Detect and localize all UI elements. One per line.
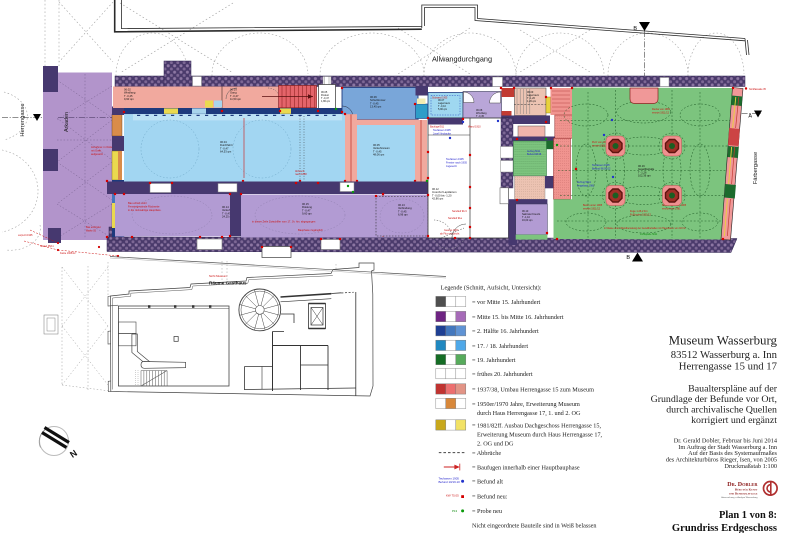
svg-text:6,96 qm: 6,96 qm xyxy=(398,213,408,217)
svg-text:83512 Wasserburg a. Inn: 83512 Wasserburg a. Inn xyxy=(671,349,778,361)
svg-text:42,86 qm: 42,86 qm xyxy=(432,197,444,201)
svg-text:Sandteil 91/4: Sandteil 91/4 xyxy=(452,210,467,213)
svg-text:Grundriss Erdgeschoss: Grundriss Erdgeschoss xyxy=(672,523,777,533)
svg-text:B: B xyxy=(626,255,630,261)
svg-text:Erweiterung Museum durch Haus: Erweiterung Museum durch Haus Herrengass… xyxy=(477,431,603,438)
svg-text:2. OG und DG: 2. OG und DG xyxy=(477,440,514,447)
svg-text:durch archivalische Quellen: durch archivalische Quellen xyxy=(666,404,777,415)
svg-text:= 19. Jahrhundert: = 19. Jahrhundert xyxy=(472,357,516,364)
svg-text:= Befund neu:: = Befund neu: xyxy=(472,493,508,500)
svg-text:48,06 qm: 48,06 qm xyxy=(373,153,385,157)
svg-text:Lichtquelle 5011: Lichtquelle 5011 xyxy=(640,233,658,236)
svg-text:Kante 1905/12: Kante 1905/12 xyxy=(60,252,76,255)
svg-text:Museum Wasserburg: Museum Wasserburg xyxy=(669,334,778,348)
svg-text:Druckmaßstab 1:100: Druckmaßstab 1:100 xyxy=(724,463,777,470)
svg-text:Sockel 05/11: Sockel 05/11 xyxy=(40,245,54,248)
svg-text:1,20 qm: 1,20 qm xyxy=(527,100,536,103)
svg-text:Allwangdurchgang: Allwangdurchgang xyxy=(432,55,492,64)
svg-text:Herrengasse 15 und 17: Herrengasse 15 und 17 xyxy=(679,360,778,372)
svg-text:ersetzt von 1981: ersetzt von 1981 xyxy=(662,207,681,210)
svg-text:Befund 98.09.02: Befund 98.09.02 xyxy=(592,167,611,170)
svg-text:Arkaden: Arkaden xyxy=(64,112,70,132)
svg-text:Befund 98.08: Befund 98.08 xyxy=(527,153,542,156)
svg-text:= 1981/82ff. Ausbau Dachgescho: = 1981/82ff. Ausbau Dachgeschoss Herreng… xyxy=(472,422,601,429)
svg-text:= Abbrüche: = Abbrüche xyxy=(472,450,501,457)
svg-text:Josef Neubauke: Josef Neubauke xyxy=(433,132,452,135)
svg-text:13,45 qm: 13,45 qm xyxy=(370,105,382,109)
svg-text:Befund 10/19.10: Befund 10/19.10 xyxy=(439,480,461,484)
svg-text:= vor Mitte 15. Jahrhundert: = vor Mitte 15. Jahrhundert xyxy=(472,299,541,306)
svg-text:= 1950er/1970 Jahre, Erweiteru: = 1950er/1970 Jahre, Erweiterung Museum xyxy=(472,401,580,408)
svg-text:Untersuchung u. Analyse Wasser: Untersuchung u. Analyse Wasserburg xyxy=(721,496,758,499)
svg-text:Räume Gasthaus: Räume Gasthaus xyxy=(209,281,247,286)
svg-text:= Baufugen innerhalb einer Hau: = Baufugen innerhalb einer Hauptbauphase xyxy=(472,465,580,472)
svg-text:5,90 qm: 5,90 qm xyxy=(438,108,447,111)
svg-text:Baualterspläne auf der: Baualterspläne auf der xyxy=(688,383,778,394)
svg-text:mit Gwlb.: mit Gwlb. xyxy=(91,148,102,152)
svg-text:ersetzt 1911/12: ersetzt 1911/12 xyxy=(583,207,601,210)
svg-text:16,00 qm: 16,00 qm xyxy=(522,219,532,222)
svg-text:in dieser Zeile Zwischllfer vo: in dieser Zeile Zwischllfer vom 17. Jh. … xyxy=(252,220,316,224)
svg-text:64,53 qm: 64,53 qm xyxy=(220,150,232,154)
svg-text:A: A xyxy=(748,114,752,120)
svg-text:102,36 qm: 102,36 qm xyxy=(638,174,651,178)
svg-text:1,86 qm: 1,86 qm xyxy=(321,100,330,103)
svg-text:Nordfassade 05: Nordfassade 05 xyxy=(749,88,767,91)
svg-text:Färbergasse: Färbergasse xyxy=(753,152,759,185)
svg-text:nach 1858: nach 1858 xyxy=(295,173,307,176)
svg-text:Südwand 1905: Südwand 1905 xyxy=(432,98,448,100)
svg-text:Bauphase zugänglich: Bauphase zugänglich xyxy=(298,228,323,232)
svg-text:Fußboden 1911/12: Fußboden 1911/12 xyxy=(630,213,652,216)
svg-text:11,50 qm: 11,50 qm xyxy=(230,97,242,101)
svg-text:Wand 1910: Wand 1910 xyxy=(468,126,481,129)
svg-text:Marke 05: Marke 05 xyxy=(86,229,97,232)
svg-text:Legende (Schnitt, Aufsicht, Un: Legende (Schnitt, Aufsicht, Untersicht): xyxy=(441,285,542,292)
svg-text:eingebaut 1981: eingebaut 1981 xyxy=(577,184,595,187)
svg-text:verputzt 1905: verputzt 1905 xyxy=(18,234,33,237)
svg-text:= frühes 20. Jahrhundert: = frühes 20. Jahrhundert xyxy=(472,371,533,378)
svg-text:in Masse unter Wandbemalung de: in Masse unter Wandbemalung der Gewölbeh… xyxy=(604,227,686,230)
svg-text:BÜRO FÜR KUNST: BÜRO FÜR KUNST xyxy=(735,487,758,491)
svg-text:Grundlage der Befunde vor Ort,: Grundlage der Befunde vor Ort, xyxy=(651,394,777,405)
svg-text:Sandteil 91a: Sandteil 91a xyxy=(448,217,463,220)
svg-text:= 2. Hälfte 16. Jahrhundert: = 2. Hälfte 16. Jahrhundert xyxy=(472,328,539,335)
svg-text:durch Haus Herrengasse 17, 1.: durch Haus Herrengasse 17, 1. und 2. OG xyxy=(477,410,581,417)
svg-text:= Befund alt: = Befund alt xyxy=(472,479,503,486)
svg-text:Annahme: in Ostteil: Annahme: in Ostteil xyxy=(91,145,114,149)
svg-text:Bau erhielt wohl: Bau erhielt wohl xyxy=(128,201,147,205)
svg-text:= Probe neu: = Probe neu xyxy=(472,508,502,515)
svg-text:Fenstergewände Rückseite: Fenstergewände Rückseite xyxy=(128,204,160,208)
svg-text:korrigiert und ergänzt: korrigiert und ergänzt xyxy=(691,415,777,426)
svg-text:aufgesetzt: aufgesetzt xyxy=(91,152,103,156)
svg-text:KW 75.05: KW 75.05 xyxy=(446,493,459,497)
svg-text:B: B xyxy=(633,26,637,32)
svg-text:zugesetzt: zugesetzt xyxy=(446,165,457,168)
svg-text:9,90 qm: 9,90 qm xyxy=(124,97,134,101)
svg-text:Herrengasse: Herrengasse xyxy=(20,103,26,136)
svg-text:Nicht Museum:: Nicht Museum: xyxy=(209,274,228,278)
svg-text:= Mitte 15. bis Mitte 16. Jahr: = Mitte 15. bis Mitte 16. Jahrhundert xyxy=(472,314,564,321)
svg-text:ersetzt 1911/12: ersetzt 1911/12 xyxy=(652,111,670,114)
svg-text:= 17. / 18. Jahrhundert: = 17. / 18. Jahrhundert xyxy=(472,343,528,350)
svg-text:Baufuge/911: Baufuge/911 xyxy=(430,126,445,129)
svg-text:UND DENKMALPFLEGE: UND DENKMALPFLEGE xyxy=(729,491,758,495)
svg-text:9,60 qm: 9,60 qm xyxy=(302,212,312,216)
svg-text:= 1937/38, Umbau Herrengasse 1: = 1937/38, Umbau Herrengasse 15 zum Muse… xyxy=(472,386,594,393)
svg-text:Plan 1 von 8:: Plan 1 von 8: xyxy=(719,510,777,521)
svg-text:P13: P13 xyxy=(452,509,458,513)
svg-text:Nicht eingeordnete Bauteile si: Nicht eingeordnete Bauteile sind in Weiß… xyxy=(472,522,596,529)
